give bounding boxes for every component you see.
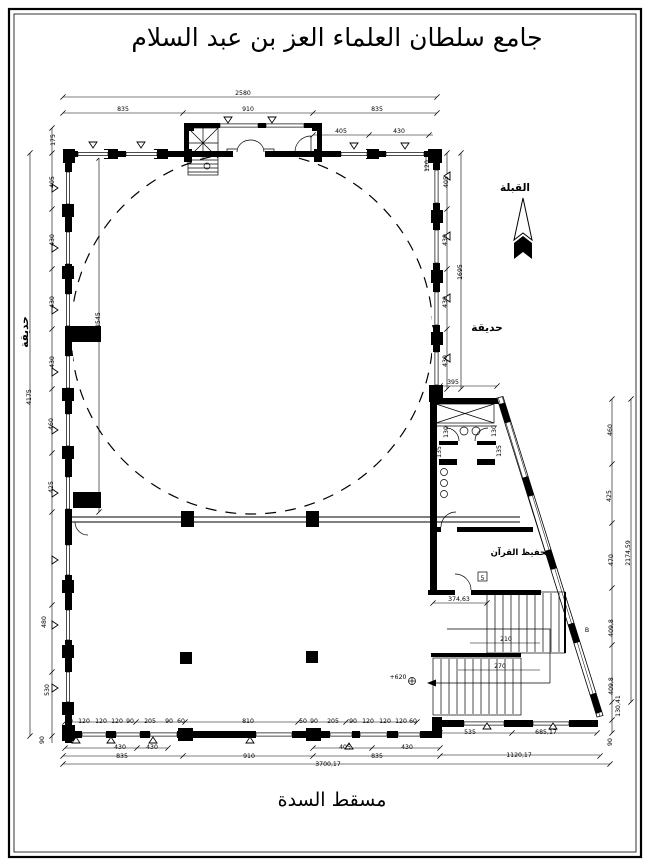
dim-label: 120	[95, 718, 107, 725]
dim-label: 90	[126, 718, 134, 725]
dim-label: 4175	[26, 389, 33, 405]
quran-room-label: تحفيظ القرآن	[491, 546, 550, 558]
dim-label: 430	[401, 744, 413, 751]
dim-label: 90	[165, 718, 173, 725]
fixture-icon	[441, 480, 448, 487]
drawing-sheet: جامع سلطان العلماء العز بن عبد السلام مس…	[0, 0, 650, 867]
dim-label: 835	[371, 753, 383, 760]
dim-label: 120	[78, 718, 90, 725]
direction-arrow-icon	[427, 680, 436, 687]
dim-label: +620	[390, 674, 407, 681]
dim-label: 175	[50, 134, 57, 146]
dim-label: 2174,59	[625, 540, 632, 566]
dimension-ticks	[27, 94, 633, 766]
quran-room-doors	[441, 512, 471, 595]
dim-label: 430	[442, 296, 449, 308]
dim-label: 430	[49, 234, 56, 246]
dim-label: 910	[242, 106, 254, 113]
garden-label-right: حديقة	[471, 322, 503, 334]
dim-label: 120	[395, 718, 407, 725]
dim-label: 405	[443, 176, 450, 188]
dim-label: 910	[243, 753, 255, 760]
drawing-caption: مسقط السدة	[278, 789, 387, 811]
dim-label: 50	[299, 718, 307, 725]
dim-label: 5	[481, 575, 485, 582]
dim-label: 835	[117, 106, 129, 113]
vent-marker-icon	[52, 368, 58, 376]
dim-label: 430	[442, 234, 449, 246]
vent-marker-icon	[350, 143, 358, 149]
dim-label: 90	[349, 718, 357, 725]
vent-marker-icon	[89, 142, 97, 148]
dim-label: 430	[49, 356, 56, 368]
dome-outline	[71, 152, 433, 514]
dim-label: 210	[500, 636, 512, 643]
dim-label: 425	[48, 481, 55, 493]
drawing-title: جامع سلطان العلماء العز بن عبد السلام	[131, 23, 542, 53]
dim-label: 90	[607, 738, 614, 746]
dim-label: 130,41	[615, 695, 622, 717]
dim-label: 405	[335, 128, 347, 135]
wc-area	[436, 404, 497, 498]
north-arrow-tail-icon	[514, 236, 532, 259]
basin-icon	[472, 427, 480, 435]
entrance-vestibule	[184, 123, 322, 175]
dim-label: 2545	[95, 312, 102, 328]
dim-label: 409,8	[608, 619, 615, 637]
dim-label: 685,17	[535, 729, 557, 736]
dim-label: 405	[49, 176, 56, 188]
column	[180, 652, 192, 664]
dim-label: 430	[393, 128, 405, 135]
dim-label: 135	[436, 446, 443, 458]
dimension-lines	[30, 97, 631, 764]
floor-plan: جامع سلطان العلماء العز بن عبد السلام مس…	[0, 0, 650, 867]
door-swing-wc	[475, 428, 488, 441]
fixture-icon	[441, 469, 448, 476]
dim-label: 3700,17	[315, 761, 341, 768]
dim-label: 120	[379, 718, 391, 725]
dim-label: 835	[371, 106, 383, 113]
dim-label: 130	[491, 425, 498, 437]
column	[306, 651, 318, 663]
door-swing-mezzanine	[75, 522, 88, 535]
dim-label: 120	[362, 718, 374, 725]
dim-label: 205	[327, 718, 339, 725]
main-stairs	[409, 592, 566, 715]
vent-marker-icon	[268, 117, 276, 123]
dim-label: 430	[114, 744, 126, 751]
dim-label: 1695	[457, 264, 464, 280]
dim-label: 205	[144, 718, 156, 725]
dim-label: 835	[116, 753, 128, 760]
dim-label: 130	[443, 426, 450, 438]
dim-label: 535	[464, 729, 476, 736]
dim-label: 480	[41, 616, 48, 628]
dim-label: 2580	[235, 90, 251, 97]
dim-label: B	[585, 627, 589, 634]
qibla-label: القبلة	[500, 182, 530, 194]
vent-marker-icon	[137, 142, 145, 148]
door-swing-entrance	[295, 136, 311, 152]
vent-marker-icon	[52, 621, 58, 629]
dimension-labels: 2580835910835405430120175405430430430460…	[26, 90, 632, 768]
basin-icon	[460, 427, 468, 435]
dim-label: 530	[44, 684, 51, 696]
vent-marker-icon	[401, 143, 409, 149]
dim-label: 425	[606, 490, 613, 502]
dim-label: 430	[442, 355, 449, 367]
dim-label: 405	[339, 744, 351, 751]
qibla-compass: القبلة	[500, 182, 532, 259]
dim-label: 460	[48, 418, 55, 430]
vent-marker-icon	[52, 556, 58, 564]
dim-label: 90	[39, 736, 46, 744]
dim-label: 395	[447, 379, 459, 386]
vent-marker-icon	[52, 684, 58, 692]
fixture-icon	[441, 491, 448, 498]
north-arrow-icon	[514, 198, 532, 240]
dim-label: 60	[65, 718, 73, 725]
dim-label: 120	[424, 160, 431, 172]
dim-label: 120	[111, 718, 123, 725]
dim-label: 430	[49, 296, 56, 308]
garden-label-left: حديقة	[19, 316, 31, 348]
dim-label: 409,8	[608, 677, 615, 695]
dim-label: 374,63	[448, 596, 470, 603]
dim-label: 60	[177, 718, 185, 725]
dim-label: 470	[608, 554, 615, 566]
dim-label: 1120,17	[506, 752, 532, 759]
vent-marker-icon	[224, 117, 232, 123]
dim-label: 460	[607, 424, 614, 436]
dim-label: 135	[496, 445, 503, 457]
dim-label: 270	[494, 663, 506, 670]
dim-label: 810	[242, 718, 254, 725]
dim-label: 60	[409, 718, 417, 725]
dim-label: 430	[146, 744, 158, 751]
dim-label: 90	[310, 718, 318, 725]
